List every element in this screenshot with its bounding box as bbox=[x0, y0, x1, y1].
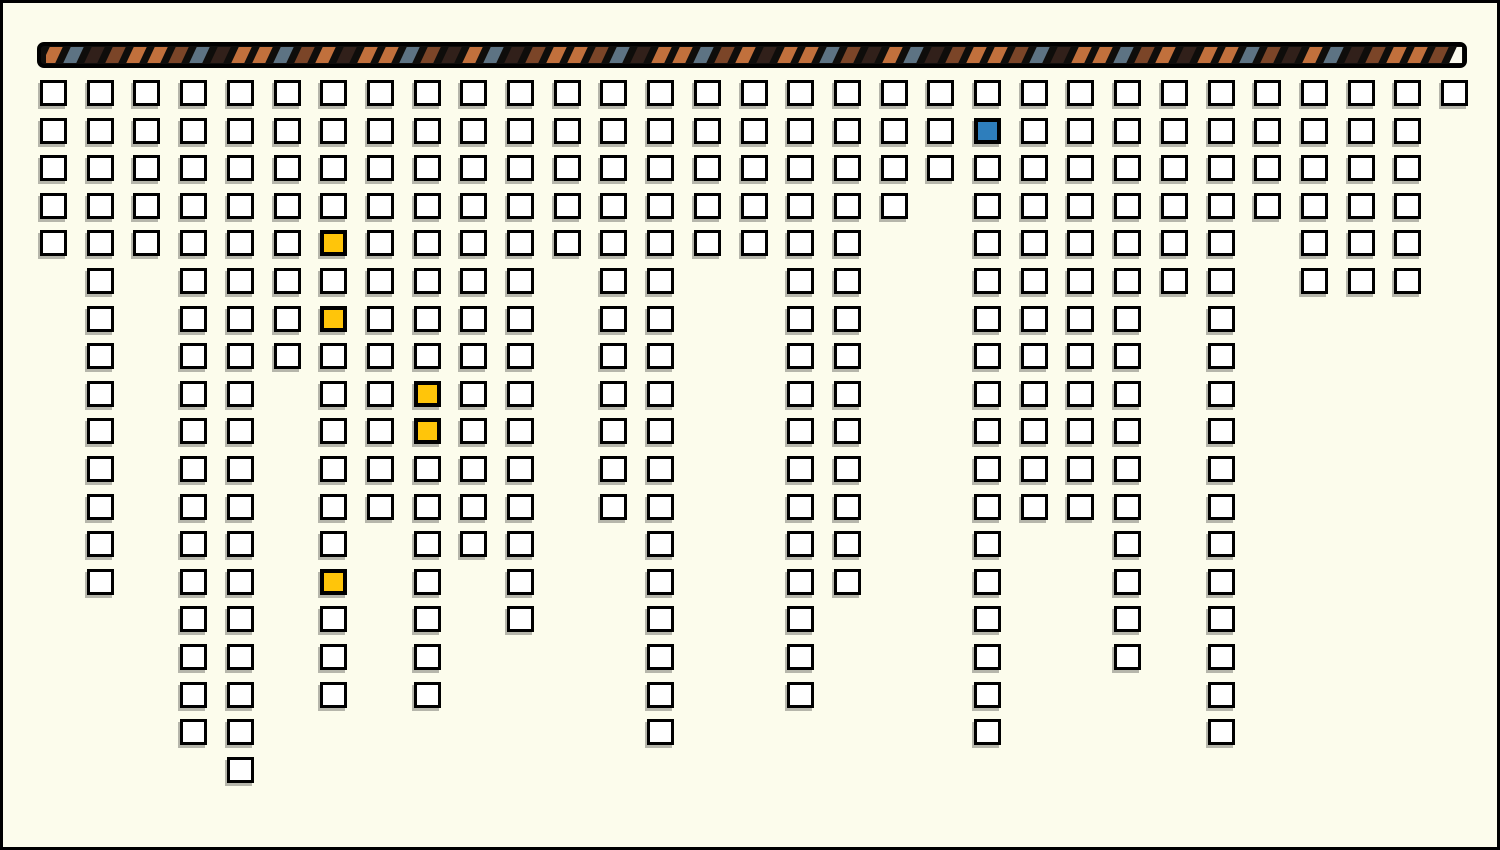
grid-cell[interactable] bbox=[180, 418, 207, 444]
grid-cell[interactable] bbox=[1208, 456, 1235, 482]
grid-cell[interactable] bbox=[974, 456, 1001, 482]
grid-cell[interactable] bbox=[787, 343, 814, 369]
grid-cell[interactable] bbox=[180, 118, 207, 144]
grid-cell[interactable] bbox=[647, 606, 674, 632]
grid-cell[interactable] bbox=[414, 268, 441, 294]
grid-cell[interactable] bbox=[227, 80, 254, 106]
grid-cell[interactable] bbox=[1067, 80, 1094, 106]
grid-cell[interactable] bbox=[1348, 80, 1375, 106]
grid-cell[interactable] bbox=[1254, 80, 1281, 106]
grid-cell[interactable] bbox=[1021, 456, 1048, 482]
grid-cell[interactable] bbox=[1394, 155, 1421, 181]
grid-cell[interactable] bbox=[1067, 343, 1094, 369]
grid-cell[interactable] bbox=[741, 230, 768, 256]
grid-cell[interactable] bbox=[1114, 118, 1141, 144]
grid-cell[interactable] bbox=[320, 644, 347, 670]
grid-cell[interactable] bbox=[507, 268, 534, 294]
grid-cell[interactable] bbox=[647, 719, 674, 745]
grid-cell[interactable] bbox=[180, 719, 207, 745]
grid-cell[interactable] bbox=[787, 418, 814, 444]
grid-cell[interactable] bbox=[320, 531, 347, 557]
grid-cell[interactable] bbox=[787, 80, 814, 106]
grid-cell[interactable] bbox=[647, 682, 674, 708]
grid-cell[interactable] bbox=[227, 343, 254, 369]
grid-cell[interactable] bbox=[414, 118, 441, 144]
grid-cell[interactable] bbox=[974, 606, 1001, 632]
grid-cell[interactable] bbox=[834, 569, 861, 595]
grid-cell[interactable] bbox=[460, 456, 487, 482]
grid-cell[interactable] bbox=[1208, 569, 1235, 595]
grid-cell[interactable] bbox=[1114, 418, 1141, 444]
grid-cell[interactable] bbox=[647, 230, 674, 256]
grid-cell[interactable] bbox=[1348, 230, 1375, 256]
grid-cell[interactable] bbox=[834, 418, 861, 444]
grid-cell[interactable] bbox=[1208, 682, 1235, 708]
grid-cell[interactable] bbox=[507, 494, 534, 520]
grid-cell[interactable] bbox=[320, 193, 347, 219]
grid-cell[interactable] bbox=[133, 118, 160, 144]
grid-cell[interactable] bbox=[460, 418, 487, 444]
grid-cell[interactable] bbox=[1021, 118, 1048, 144]
grid-cell[interactable] bbox=[974, 80, 1001, 106]
grid-cell[interactable] bbox=[647, 456, 674, 482]
grid-cell[interactable] bbox=[414, 343, 441, 369]
grid-cell[interactable] bbox=[414, 531, 441, 557]
grid-cell[interactable] bbox=[460, 118, 487, 144]
grid-cell[interactable] bbox=[1161, 268, 1188, 294]
grid-cell[interactable] bbox=[180, 569, 207, 595]
grid-cell[interactable] bbox=[87, 343, 114, 369]
grid-cell[interactable] bbox=[227, 606, 254, 632]
grid-cell[interactable] bbox=[1161, 155, 1188, 181]
grid-cell[interactable] bbox=[881, 118, 908, 144]
grid-cell[interactable] bbox=[180, 381, 207, 407]
grid-cell[interactable] bbox=[460, 155, 487, 181]
grid-cell[interactable] bbox=[367, 193, 394, 219]
grid-cell[interactable] bbox=[507, 569, 534, 595]
grid-cell[interactable] bbox=[554, 155, 581, 181]
grid-cell[interactable] bbox=[87, 155, 114, 181]
grid-cell[interactable] bbox=[787, 381, 814, 407]
grid-cell[interactable] bbox=[460, 193, 487, 219]
grid-cell[interactable] bbox=[507, 306, 534, 332]
grid-cell[interactable] bbox=[367, 494, 394, 520]
grid-cell[interactable] bbox=[600, 381, 627, 407]
grid-cell[interactable] bbox=[320, 456, 347, 482]
grid-cell[interactable] bbox=[414, 155, 441, 181]
grid-cell[interactable] bbox=[881, 193, 908, 219]
grid-cell[interactable] bbox=[1348, 155, 1375, 181]
grid-cell[interactable] bbox=[1067, 381, 1094, 407]
grid-cell[interactable] bbox=[1067, 494, 1094, 520]
grid-cell[interactable] bbox=[180, 494, 207, 520]
grid-cell[interactable] bbox=[741, 155, 768, 181]
grid-cell[interactable] bbox=[40, 80, 67, 106]
grid-cell[interactable] bbox=[600, 418, 627, 444]
grid-cell[interactable] bbox=[1067, 118, 1094, 144]
grid-cell[interactable] bbox=[414, 606, 441, 632]
grid-cell[interactable] bbox=[460, 531, 487, 557]
grid-cell[interactable] bbox=[414, 456, 441, 482]
grid-cell[interactable] bbox=[1021, 193, 1048, 219]
grid-cell[interactable] bbox=[1114, 268, 1141, 294]
grid-cell[interactable] bbox=[507, 531, 534, 557]
grid-cell-yellow[interactable] bbox=[414, 418, 441, 444]
grid-cell[interactable] bbox=[227, 644, 254, 670]
grid-cell[interactable] bbox=[974, 494, 1001, 520]
grid-cell[interactable] bbox=[507, 118, 534, 144]
grid-cell[interactable] bbox=[787, 456, 814, 482]
grid-cell[interactable] bbox=[180, 606, 207, 632]
grid-cell[interactable] bbox=[227, 193, 254, 219]
grid-cell[interactable] bbox=[1114, 644, 1141, 670]
grid-cell[interactable] bbox=[274, 268, 301, 294]
grid-cell[interactable] bbox=[1114, 606, 1141, 632]
grid-cell[interactable] bbox=[1208, 306, 1235, 332]
grid-cell[interactable] bbox=[1161, 118, 1188, 144]
grid-cell[interactable] bbox=[694, 118, 721, 144]
grid-cell[interactable] bbox=[227, 494, 254, 520]
grid-cell[interactable] bbox=[647, 118, 674, 144]
grid-cell[interactable] bbox=[1067, 418, 1094, 444]
grid-cell[interactable] bbox=[227, 719, 254, 745]
grid-cell-blue[interactable] bbox=[974, 118, 1001, 144]
grid-cell[interactable] bbox=[507, 230, 534, 256]
grid-cell[interactable] bbox=[274, 80, 301, 106]
grid-cell[interactable] bbox=[1114, 155, 1141, 181]
grid-cell[interactable] bbox=[834, 193, 861, 219]
grid-cell[interactable] bbox=[40, 230, 67, 256]
grid-cell[interactable] bbox=[834, 118, 861, 144]
grid-cell[interactable] bbox=[1208, 80, 1235, 106]
grid-cell[interactable] bbox=[787, 644, 814, 670]
grid-cell[interactable] bbox=[227, 757, 254, 783]
grid-cell[interactable] bbox=[1208, 644, 1235, 670]
grid-cell[interactable] bbox=[1348, 193, 1375, 219]
grid-cell[interactable] bbox=[320, 118, 347, 144]
grid-cell[interactable] bbox=[274, 193, 301, 219]
grid-cell[interactable] bbox=[367, 306, 394, 332]
grid-cell[interactable] bbox=[40, 155, 67, 181]
grid-cell[interactable] bbox=[647, 80, 674, 106]
grid-cell[interactable] bbox=[647, 569, 674, 595]
grid-cell[interactable] bbox=[414, 682, 441, 708]
grid-cell[interactable] bbox=[1067, 230, 1094, 256]
grid-cell[interactable] bbox=[227, 682, 254, 708]
grid-cell[interactable] bbox=[927, 80, 954, 106]
grid-cell[interactable] bbox=[1114, 306, 1141, 332]
grid-cell[interactable] bbox=[1114, 80, 1141, 106]
grid-cell[interactable] bbox=[600, 268, 627, 294]
grid-cell[interactable] bbox=[133, 230, 160, 256]
grid-cell-yellow[interactable] bbox=[320, 569, 347, 595]
grid-cell[interactable] bbox=[1067, 193, 1094, 219]
grid-cell[interactable] bbox=[414, 230, 441, 256]
grid-cell[interactable] bbox=[1301, 155, 1328, 181]
grid-cell[interactable] bbox=[600, 343, 627, 369]
grid-cell[interactable] bbox=[133, 193, 160, 219]
grid-cell[interactable] bbox=[507, 456, 534, 482]
grid-cell[interactable] bbox=[227, 569, 254, 595]
grid-cell[interactable] bbox=[1067, 268, 1094, 294]
grid-cell[interactable] bbox=[834, 531, 861, 557]
grid-cell[interactable] bbox=[927, 118, 954, 144]
grid-cell[interactable] bbox=[834, 268, 861, 294]
grid-cell[interactable] bbox=[40, 118, 67, 144]
grid-cell[interactable] bbox=[787, 118, 814, 144]
grid-cell[interactable] bbox=[554, 193, 581, 219]
grid-cell[interactable] bbox=[1208, 230, 1235, 256]
grid-cell[interactable] bbox=[367, 343, 394, 369]
grid-cell[interactable] bbox=[507, 418, 534, 444]
grid-cell[interactable] bbox=[320, 80, 347, 106]
grid-cell[interactable] bbox=[133, 155, 160, 181]
grid-cell[interactable] bbox=[87, 80, 114, 106]
grid-cell[interactable] bbox=[180, 343, 207, 369]
grid-cell[interactable] bbox=[180, 155, 207, 181]
grid-cell[interactable] bbox=[1301, 80, 1328, 106]
grid-cell[interactable] bbox=[974, 719, 1001, 745]
grid-cell[interactable] bbox=[647, 155, 674, 181]
grid-cell[interactable] bbox=[974, 306, 1001, 332]
grid-cell[interactable] bbox=[834, 456, 861, 482]
grid-cell[interactable] bbox=[834, 306, 861, 332]
grid-cell[interactable] bbox=[507, 193, 534, 219]
grid-cell[interactable] bbox=[834, 494, 861, 520]
grid-cell[interactable] bbox=[414, 644, 441, 670]
grid-cell[interactable] bbox=[227, 306, 254, 332]
grid-cell[interactable] bbox=[320, 381, 347, 407]
grid-cell[interactable] bbox=[1208, 193, 1235, 219]
grid-cell[interactable] bbox=[1394, 268, 1421, 294]
grid-cell[interactable] bbox=[1067, 456, 1094, 482]
grid-cell[interactable] bbox=[1254, 118, 1281, 144]
grid-cell[interactable] bbox=[600, 155, 627, 181]
grid-cell[interactable] bbox=[647, 343, 674, 369]
grid-cell[interactable] bbox=[87, 418, 114, 444]
grid-cell[interactable] bbox=[1021, 80, 1048, 106]
grid-cell[interactable] bbox=[1208, 494, 1235, 520]
grid-cell[interactable] bbox=[460, 306, 487, 332]
grid-cell[interactable] bbox=[87, 381, 114, 407]
grid-cell[interactable] bbox=[647, 193, 674, 219]
grid-cell[interactable] bbox=[1114, 193, 1141, 219]
grid-cell[interactable] bbox=[1301, 118, 1328, 144]
grid-cell[interactable] bbox=[367, 118, 394, 144]
grid-cell[interactable] bbox=[1021, 381, 1048, 407]
grid-cell[interactable] bbox=[227, 118, 254, 144]
grid-cell[interactable] bbox=[787, 494, 814, 520]
grid-cell[interactable] bbox=[974, 193, 1001, 219]
grid-cell-yellow[interactable] bbox=[320, 230, 347, 256]
grid-cell[interactable] bbox=[1208, 531, 1235, 557]
grid-cell[interactable] bbox=[180, 193, 207, 219]
grid-cell[interactable] bbox=[180, 80, 207, 106]
grid-cell[interactable] bbox=[460, 381, 487, 407]
grid-cell[interactable] bbox=[834, 381, 861, 407]
grid-cell[interactable] bbox=[1114, 456, 1141, 482]
grid-cell[interactable] bbox=[320, 494, 347, 520]
grid-cell[interactable] bbox=[600, 118, 627, 144]
grid-cell[interactable] bbox=[1114, 569, 1141, 595]
grid-cell[interactable] bbox=[741, 193, 768, 219]
grid-cell[interactable] bbox=[647, 418, 674, 444]
grid-cell[interactable] bbox=[274, 155, 301, 181]
grid-cell[interactable] bbox=[87, 531, 114, 557]
grid-cell[interactable] bbox=[87, 230, 114, 256]
grid-cell[interactable] bbox=[367, 268, 394, 294]
grid-cell[interactable] bbox=[133, 80, 160, 106]
grid-cell[interactable] bbox=[974, 381, 1001, 407]
grid-cell[interactable] bbox=[414, 193, 441, 219]
grid-cell[interactable] bbox=[227, 418, 254, 444]
grid-cell[interactable] bbox=[647, 644, 674, 670]
grid-cell[interactable] bbox=[227, 268, 254, 294]
grid-cell[interactable] bbox=[1301, 268, 1328, 294]
grid-cell[interactable] bbox=[274, 230, 301, 256]
grid-cell[interactable] bbox=[460, 268, 487, 294]
grid-cell[interactable] bbox=[227, 381, 254, 407]
grid-cell[interactable] bbox=[787, 155, 814, 181]
grid-cell[interactable] bbox=[180, 306, 207, 332]
grid-cell[interactable] bbox=[974, 682, 1001, 708]
grid-cell[interactable] bbox=[1208, 155, 1235, 181]
grid-cell[interactable] bbox=[1208, 343, 1235, 369]
grid-cell[interactable] bbox=[320, 155, 347, 181]
grid-cell[interactable] bbox=[1208, 381, 1235, 407]
grid-cell[interactable] bbox=[1021, 306, 1048, 332]
grid-cell[interactable] bbox=[600, 193, 627, 219]
grid-cell[interactable] bbox=[554, 230, 581, 256]
grid-cell[interactable] bbox=[274, 118, 301, 144]
grid-cell[interactable] bbox=[414, 80, 441, 106]
grid-cell[interactable] bbox=[1208, 606, 1235, 632]
grid-cell[interactable] bbox=[834, 80, 861, 106]
grid-cell[interactable] bbox=[227, 531, 254, 557]
grid-cell[interactable] bbox=[227, 230, 254, 256]
grid-cell[interactable] bbox=[414, 306, 441, 332]
grid-cell[interactable] bbox=[367, 381, 394, 407]
grid-cell[interactable] bbox=[1208, 118, 1235, 144]
grid-cell[interactable] bbox=[787, 682, 814, 708]
grid-cell[interactable] bbox=[974, 155, 1001, 181]
grid-cell[interactable] bbox=[460, 343, 487, 369]
grid-cell[interactable] bbox=[1067, 306, 1094, 332]
grid-cell[interactable] bbox=[881, 155, 908, 181]
grid-cell[interactable] bbox=[694, 193, 721, 219]
grid-cell[interactable] bbox=[507, 80, 534, 106]
grid-cell[interactable] bbox=[1301, 193, 1328, 219]
grid-cell[interactable] bbox=[460, 80, 487, 106]
grid-cell[interactable] bbox=[1254, 193, 1281, 219]
grid-cell[interactable] bbox=[600, 80, 627, 106]
grid-cell[interactable] bbox=[367, 230, 394, 256]
grid-cell[interactable] bbox=[414, 569, 441, 595]
grid-cell[interactable] bbox=[834, 230, 861, 256]
grid-cell[interactable] bbox=[1021, 343, 1048, 369]
grid-cell[interactable] bbox=[367, 155, 394, 181]
grid-cell[interactable] bbox=[87, 268, 114, 294]
grid-cell[interactable] bbox=[274, 343, 301, 369]
grid-cell[interactable] bbox=[1161, 193, 1188, 219]
grid-cell[interactable] bbox=[1441, 80, 1468, 106]
grid-cell[interactable] bbox=[974, 531, 1001, 557]
grid-cell[interactable] bbox=[1301, 230, 1328, 256]
grid-cell[interactable] bbox=[320, 606, 347, 632]
grid-cell[interactable] bbox=[1114, 230, 1141, 256]
grid-cell[interactable] bbox=[320, 682, 347, 708]
grid-cell[interactable] bbox=[787, 193, 814, 219]
grid-cell[interactable] bbox=[1114, 494, 1141, 520]
grid-cell[interactable] bbox=[927, 155, 954, 181]
grid-cell[interactable] bbox=[741, 80, 768, 106]
grid-cell[interactable] bbox=[320, 268, 347, 294]
grid-cell[interactable] bbox=[834, 155, 861, 181]
grid-cell[interactable] bbox=[367, 80, 394, 106]
grid-cell[interactable] bbox=[1394, 118, 1421, 144]
grid-cell[interactable] bbox=[787, 268, 814, 294]
grid-cell[interactable] bbox=[974, 644, 1001, 670]
grid-cell[interactable] bbox=[87, 118, 114, 144]
grid-cell[interactable] bbox=[460, 494, 487, 520]
grid-cell[interactable] bbox=[787, 306, 814, 332]
grid-cell[interactable] bbox=[320, 343, 347, 369]
grid-cell[interactable] bbox=[974, 418, 1001, 444]
grid-cell[interactable] bbox=[507, 155, 534, 181]
grid-cell[interactable] bbox=[1114, 381, 1141, 407]
grid-cell[interactable] bbox=[600, 306, 627, 332]
grid-cell[interactable] bbox=[180, 531, 207, 557]
grid-cell[interactable] bbox=[460, 230, 487, 256]
grid-cell[interactable] bbox=[1394, 230, 1421, 256]
grid-cell[interactable] bbox=[1348, 118, 1375, 144]
grid-cell[interactable] bbox=[554, 118, 581, 144]
grid-cell[interactable] bbox=[647, 306, 674, 332]
grid-cell[interactable] bbox=[1208, 719, 1235, 745]
grid-cell[interactable] bbox=[320, 418, 347, 444]
grid-cell[interactable] bbox=[554, 80, 581, 106]
grid-cell[interactable] bbox=[1394, 193, 1421, 219]
grid-cell[interactable] bbox=[414, 494, 441, 520]
grid-cell[interactable] bbox=[600, 456, 627, 482]
grid-cell[interactable] bbox=[787, 531, 814, 557]
grid-cell[interactable] bbox=[1208, 418, 1235, 444]
grid-cell-yellow[interactable] bbox=[414, 381, 441, 407]
grid-cell[interactable] bbox=[87, 456, 114, 482]
grid-cell[interactable] bbox=[1394, 80, 1421, 106]
grid-cell[interactable] bbox=[1021, 418, 1048, 444]
grid-cell[interactable] bbox=[834, 343, 861, 369]
grid-cell[interactable] bbox=[694, 230, 721, 256]
grid-cell[interactable] bbox=[1067, 155, 1094, 181]
grid-cell[interactable] bbox=[227, 155, 254, 181]
grid-cell[interactable] bbox=[647, 268, 674, 294]
grid-cell[interactable] bbox=[507, 381, 534, 407]
grid-cell[interactable] bbox=[274, 306, 301, 332]
grid-cell[interactable] bbox=[974, 569, 1001, 595]
grid-cell[interactable] bbox=[180, 230, 207, 256]
grid-cell[interactable] bbox=[1114, 343, 1141, 369]
grid-cell[interactable] bbox=[40, 193, 67, 219]
grid-cell[interactable] bbox=[87, 569, 114, 595]
grid-cell[interactable] bbox=[180, 268, 207, 294]
grid-cell[interactable] bbox=[1021, 230, 1048, 256]
grid-cell[interactable] bbox=[367, 418, 394, 444]
grid-cell[interactable] bbox=[180, 456, 207, 482]
grid-cell[interactable] bbox=[1208, 268, 1235, 294]
grid-cell[interactable] bbox=[787, 569, 814, 595]
grid-cell[interactable] bbox=[1021, 494, 1048, 520]
